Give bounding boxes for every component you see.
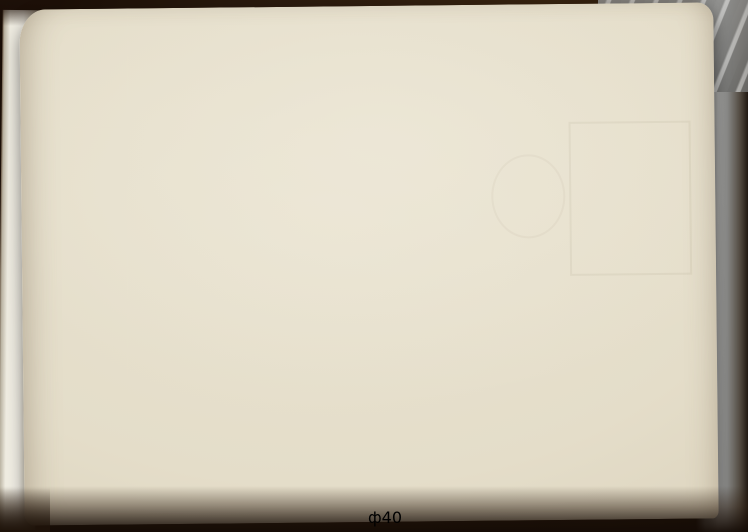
book-page (19, 2, 718, 525)
binding-bottom-shadow (0, 488, 50, 532)
showthrough-ghost (491, 154, 566, 239)
next-page-edge: ф40 (368, 508, 698, 527)
next-page-text-fragment: ф40 (368, 508, 698, 527)
photo-of-textbook-page: ф100 ф80 ф38 ф60 ф10 4 отв. 10 20 40 (0, 0, 748, 532)
showthrough-ghost (569, 121, 693, 276)
